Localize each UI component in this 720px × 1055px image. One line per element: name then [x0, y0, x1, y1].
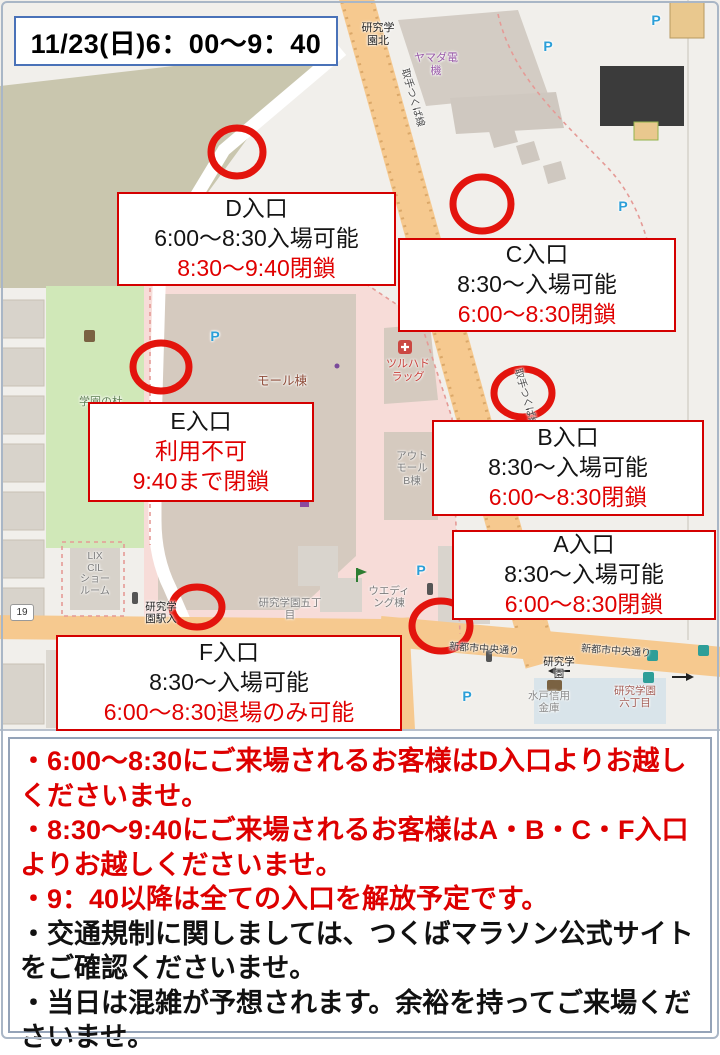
entrance-closed-hours: 6:00～8:30閉鎖	[458, 300, 617, 330]
entrance-name: F入口	[199, 638, 259, 668]
bank-icon	[547, 680, 562, 691]
entrance-status: 利用不可	[155, 437, 247, 467]
entrance-name: E入口	[170, 407, 231, 437]
entrance-name: A入口	[553, 530, 614, 560]
note-all-open: ・9：40以降は全ての入口を解放予定です。	[20, 882, 700, 917]
trash-icon	[84, 330, 95, 342]
entrance-name: C入口	[506, 240, 569, 270]
event-date-time-title: 11/23(日)6：00～9：40	[14, 16, 338, 66]
entrance-callout-a: A入口 8:30～入場可能 6:00～8:30閉鎖	[452, 530, 716, 620]
entrance-open-hours: 6:00～8:30入場可能	[154, 224, 359, 254]
note-early-arrival: ・6:00～8:30にご来場されるお客様はD入口よりお越しくださいませ。	[20, 744, 700, 813]
entrance-callout-b: B入口 8:30～入場可能 6:00～8:30閉鎖	[432, 420, 704, 516]
bus-stop-icon	[643, 672, 654, 683]
traffic-signal-icon	[132, 592, 138, 604]
entrance-closed-hours: 6:00～8:30閉鎖	[505, 590, 664, 620]
note-traffic-regulation: ・交通規制に関しましては、つくばマラソン公式サイトをご確認くださいませ。	[20, 917, 700, 986]
entrance-open-hours: 8:30～入場可能	[488, 453, 648, 483]
entrance-callout-c: C入口 8:30～入場可能 6:00～8:30閉鎖	[398, 238, 676, 332]
tsuruha-building	[384, 324, 438, 404]
entrance-exit-only-hours: 6:00～8:30退場のみ可能	[104, 698, 355, 728]
entrance-open-hours: 8:30～入場可能	[457, 270, 617, 300]
entrance-callout-e: E入口 利用不可 9:40まで閉鎖	[88, 402, 314, 502]
entrance-name: D入口	[225, 194, 288, 224]
map-canvas	[0, 0, 720, 730]
traffic-signal-icon	[486, 650, 492, 662]
dark-building	[600, 66, 684, 126]
entrance-closed-hours: 9:40まで閉鎖	[133, 467, 270, 497]
note-late-arrival: ・8:30～9:40にご来場されるお客様はA・B・C・F入口よりお越しくださいま…	[20, 813, 700, 882]
entrance-name: B入口	[537, 423, 598, 453]
outlet-mall-b-building	[384, 432, 438, 520]
shop-icon	[335, 364, 340, 369]
entrance-closed-hours: 8:30～9:40閉鎖	[177, 254, 336, 284]
notes-panel: ・6:00～8:30にご来場されるお客様はD入口よりお越しくださいませ。 ・8:…	[8, 737, 712, 1033]
entrance-closed-hours: 6:00～8:30閉鎖	[489, 483, 648, 513]
bus-stop-icon	[698, 645, 709, 656]
entrance-open-hours: 8:30～入場可能	[149, 668, 309, 698]
entrance-callout-f: F入口 8:30～入場可能 6:00～8:30退場のみ可能	[56, 635, 402, 731]
entrance-open-hours: 8:30～入場可能	[504, 560, 664, 590]
note-congestion: ・当日は混雑が予想されます。余裕を持ってご来場くださいませ。	[20, 986, 700, 1055]
entrance-callout-d: D入口 6:00～8:30入場可能 8:30～9:40閉鎖	[117, 192, 396, 286]
lixil-building	[70, 548, 120, 610]
bus-stop-icon	[647, 650, 658, 661]
traffic-signal-icon	[427, 583, 433, 595]
route-19-shield: 19	[10, 604, 34, 621]
